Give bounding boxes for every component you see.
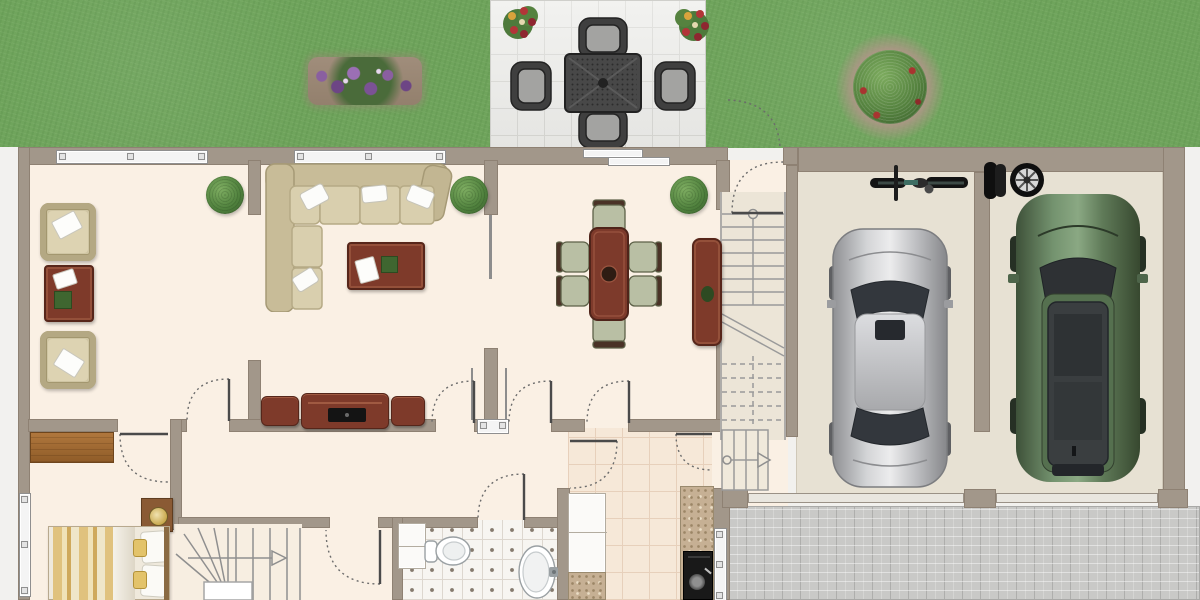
media-console-left [261, 396, 299, 426]
opening-post-1 [471, 368, 473, 420]
dining-chair [629, 242, 657, 272]
car-green [1008, 190, 1148, 486]
lawn-right [704, 0, 1200, 148]
dining-chair [629, 276, 657, 306]
patio-chair-top [586, 25, 620, 52]
washbasin [518, 545, 560, 600]
kitchen-cabinet [568, 493, 606, 573]
media-console-center [301, 393, 389, 429]
patio-chair-bottom [586, 114, 620, 141]
opening-line-dining [489, 215, 492, 279]
kitchen-worktop-left [568, 572, 606, 600]
table-plant [54, 291, 72, 309]
wall-garage-divider [974, 172, 990, 432]
armchair-2 [40, 331, 96, 389]
toilet [423, 533, 473, 569]
skillet-handle [704, 568, 711, 575]
wall-hall-pier-2 [551, 419, 585, 432]
wall-sitting-stub-top [248, 160, 261, 215]
sideboard-plant [701, 286, 714, 302]
dining-set [556, 198, 662, 350]
wall-top-door-pier [783, 147, 798, 165]
car-silver [827, 226, 953, 490]
floor-plan [0, 0, 1200, 600]
clock [149, 507, 168, 526]
sideboard [692, 238, 722, 346]
staircase-winder [174, 524, 302, 600]
patio-chair-right [661, 69, 688, 103]
armchair-1 [40, 203, 96, 261]
range-cooker [683, 551, 713, 600]
wall-bedroom-top [28, 419, 118, 432]
coffee-table-plant [381, 256, 398, 273]
garden-shrub [853, 50, 927, 124]
window-sitting [56, 150, 208, 164]
potted-plant-dining [670, 176, 708, 214]
accent-pillow [133, 539, 147, 557]
double-bed [48, 526, 170, 600]
accent-pillow [133, 571, 147, 589]
garage-pillar-right [1158, 489, 1188, 508]
potted-plant-living [450, 176, 488, 214]
staircase-lower-flight [718, 428, 788, 494]
patio-chair-left [518, 69, 545, 103]
bed-blanket [53, 527, 115, 600]
magazine [354, 256, 380, 284]
flower-bed [308, 57, 422, 105]
pass-through-window [477, 419, 509, 434]
sliding-door-panel-2 [608, 157, 670, 166]
potted-plant-sitting [206, 176, 244, 214]
window-bedroom [19, 493, 31, 597]
tv [328, 408, 366, 422]
wall-stair-right [786, 165, 798, 437]
side-table [44, 265, 94, 322]
bicycle [866, 162, 974, 204]
garage-door-left [748, 493, 964, 503]
outside-right [1185, 147, 1200, 507]
dining-chair [561, 276, 589, 306]
driveway [728, 506, 1200, 600]
patio-dining-set [505, 12, 701, 154]
media-console-right [391, 396, 425, 426]
opening-post-2 [505, 368, 507, 420]
wall-right-garage [1163, 147, 1185, 507]
wall-dining-bottom [628, 419, 730, 432]
window-kitchen [714, 528, 727, 600]
table-book [52, 268, 78, 290]
console-line [308, 402, 382, 404]
outside-left [0, 147, 18, 600]
headboard [164, 527, 169, 600]
garage-pillar-center [964, 489, 996, 508]
garage-door-right [996, 493, 1158, 503]
bathroom-cabinet [398, 523, 426, 569]
staircase-main [720, 192, 786, 440]
coffee-table [347, 242, 425, 290]
desk [30, 432, 114, 463]
bed-sheet-fold [113, 527, 135, 600]
dining-chair [561, 242, 589, 272]
skillet [689, 574, 705, 590]
